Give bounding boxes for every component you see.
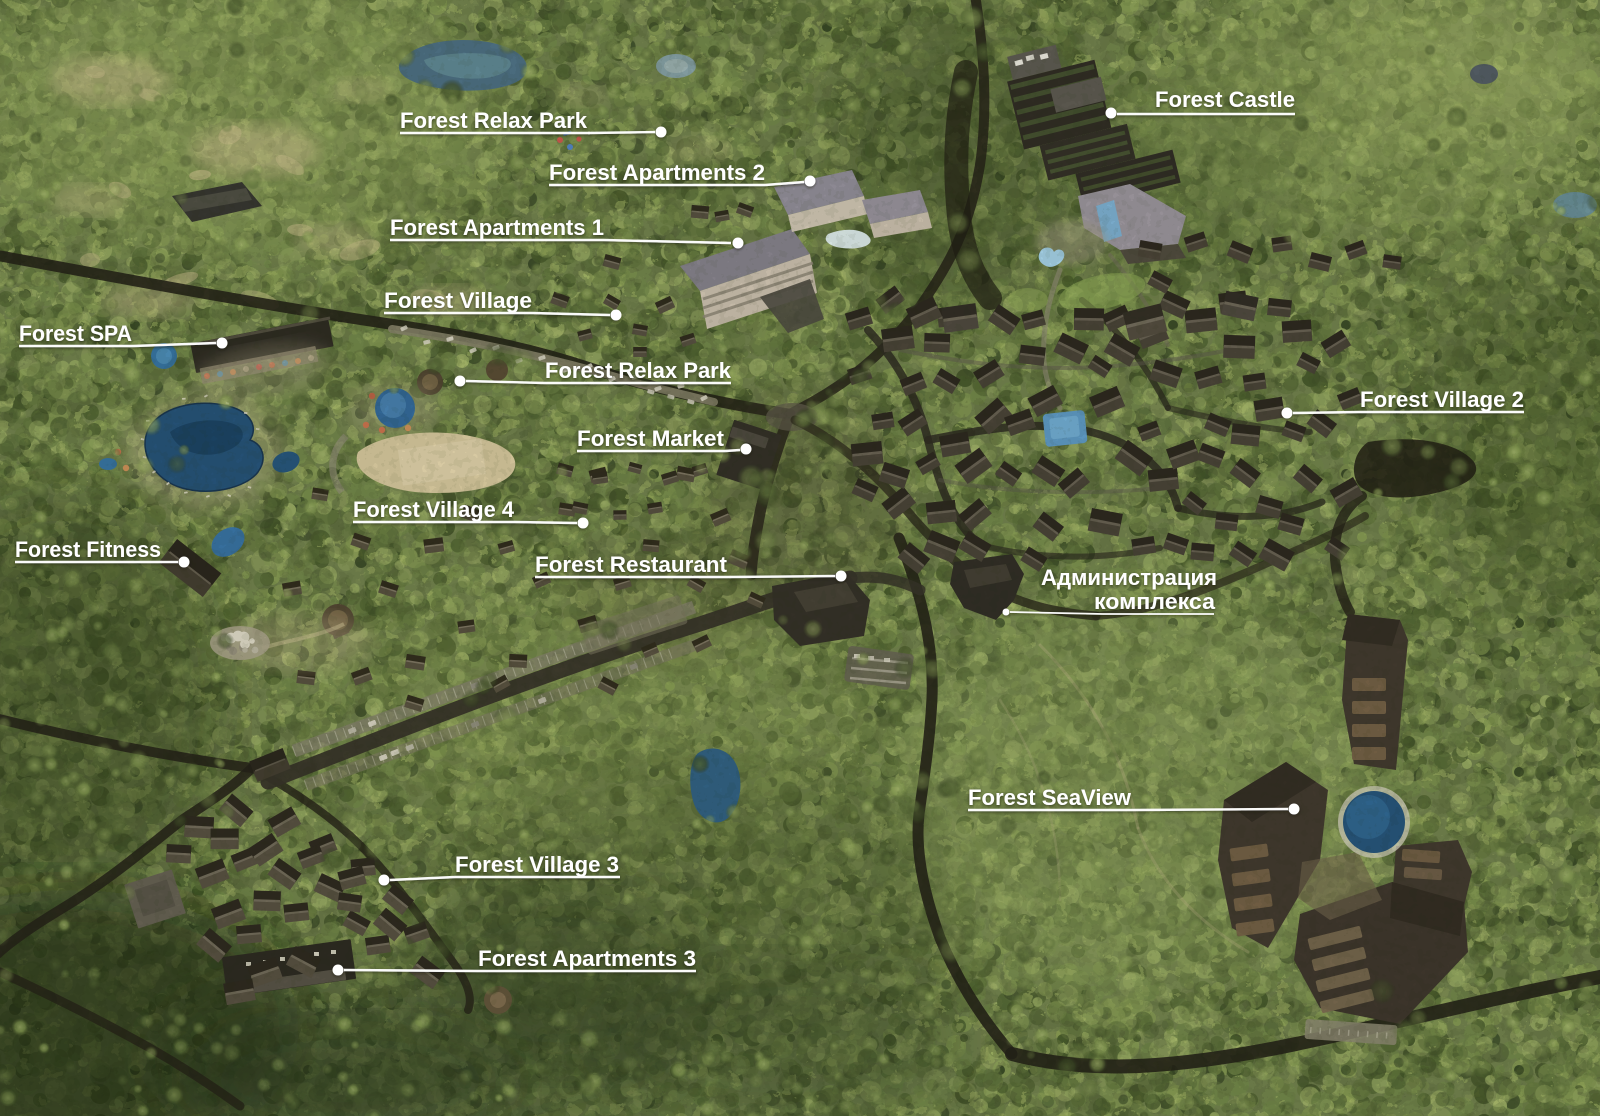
svg-text:комплекса: комплекса: [1094, 589, 1216, 614]
svg-text:Forest Fitness: Forest Fitness: [15, 537, 161, 562]
svg-text:Forest Market: Forest Market: [577, 426, 725, 451]
svg-text:Forest Village 4: Forest Village 4: [353, 497, 515, 522]
svg-text:Forest Village: Forest Village: [384, 288, 532, 313]
svg-text:Forest Relax Park: Forest Relax Park: [545, 358, 732, 383]
svg-text:Forest Apartments 3: Forest Apartments 3: [478, 946, 696, 971]
svg-text:Forest Village 2: Forest Village 2: [1360, 387, 1524, 412]
svg-text:Forest Castle: Forest Castle: [1155, 87, 1295, 112]
svg-text:Forest Village 3: Forest Village 3: [455, 852, 619, 877]
svg-text:Forest Apartments 1: Forest Apartments 1: [390, 215, 604, 240]
svg-text:Forest Restaurant: Forest Restaurant: [535, 552, 728, 577]
svg-text:Forest SeaView: Forest SeaView: [968, 785, 1132, 810]
svg-text:Администрация: Администрация: [1041, 565, 1217, 590]
svg-text:Forest Apartments 2: Forest Apartments 2: [549, 160, 765, 185]
svg-text:Forest Relax Park: Forest Relax Park: [400, 108, 588, 133]
svg-text:Forest SPA: Forest SPA: [19, 321, 132, 346]
